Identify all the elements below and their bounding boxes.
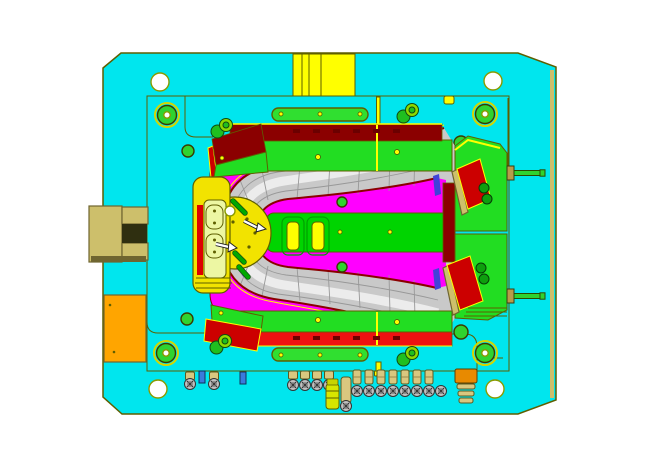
ejector-circle xyxy=(337,262,347,272)
screw-head[interactable] xyxy=(424,386,435,397)
screw-head[interactable] xyxy=(185,379,196,390)
cad-viewport[interactable] xyxy=(0,0,650,470)
retainer-bar-top[interactable] xyxy=(272,108,368,121)
core-slot xyxy=(312,222,324,250)
guide-pin[interactable] xyxy=(155,103,179,127)
screw-head[interactable] xyxy=(400,386,411,397)
screw-cap xyxy=(289,371,298,379)
mold-drawing xyxy=(0,0,650,470)
sprue-puller-fitting[interactable] xyxy=(326,379,339,409)
screw-cap xyxy=(325,371,334,379)
core-island[interactable] xyxy=(266,213,450,255)
screw-head[interactable] xyxy=(352,386,363,397)
pin-cylinder xyxy=(377,370,385,384)
pin-cylinder xyxy=(389,370,397,384)
screw-head[interactable] xyxy=(388,386,399,397)
blue-clip xyxy=(240,372,246,384)
right-divider-strip xyxy=(443,183,455,262)
bracket-gap xyxy=(122,224,147,243)
screw-head[interactable] xyxy=(312,380,323,391)
screw-head[interactable] xyxy=(412,386,423,397)
runner-stub xyxy=(377,97,381,124)
blue-clip xyxy=(199,371,205,383)
slide-block-top-right[interactable] xyxy=(452,136,507,231)
boss-slot xyxy=(206,205,223,229)
stop-pin[interactable] xyxy=(341,377,352,412)
corner-hole xyxy=(484,72,502,90)
pin-cylinder xyxy=(401,370,409,384)
clamp-bracket[interactable] xyxy=(89,206,148,262)
ejector-circle xyxy=(337,197,347,207)
corner-key-notch xyxy=(444,96,454,104)
corner-hole xyxy=(486,380,504,398)
pin-cylinder xyxy=(365,370,373,384)
bracket-shadow xyxy=(91,256,146,262)
screw-head[interactable] xyxy=(209,379,220,390)
pin-cylinder xyxy=(353,370,361,384)
sprue-block[interactable] xyxy=(293,54,355,96)
screw-head[interactable] xyxy=(364,386,375,397)
boss-red-strip xyxy=(197,205,203,275)
screw-head[interactable] xyxy=(288,380,299,391)
pin-cylinder xyxy=(413,370,421,384)
guide-pin[interactable] xyxy=(473,102,497,126)
retainer-bar-bottom[interactable] xyxy=(272,348,368,361)
guide-pin[interactable] xyxy=(154,341,178,365)
screw-head[interactable] xyxy=(300,380,311,391)
screw-cap xyxy=(313,371,322,379)
guide-pin[interactable] xyxy=(473,341,497,365)
screw-cap xyxy=(301,371,310,379)
pin-cylinder xyxy=(425,370,433,384)
corner-hole xyxy=(149,380,167,398)
boss-hole xyxy=(225,206,235,216)
corner-hole xyxy=(151,73,169,91)
core-slot xyxy=(287,222,299,250)
support-block[interactable] xyxy=(104,295,146,362)
screw-head[interactable] xyxy=(436,386,447,397)
screw-head[interactable] xyxy=(376,386,387,397)
